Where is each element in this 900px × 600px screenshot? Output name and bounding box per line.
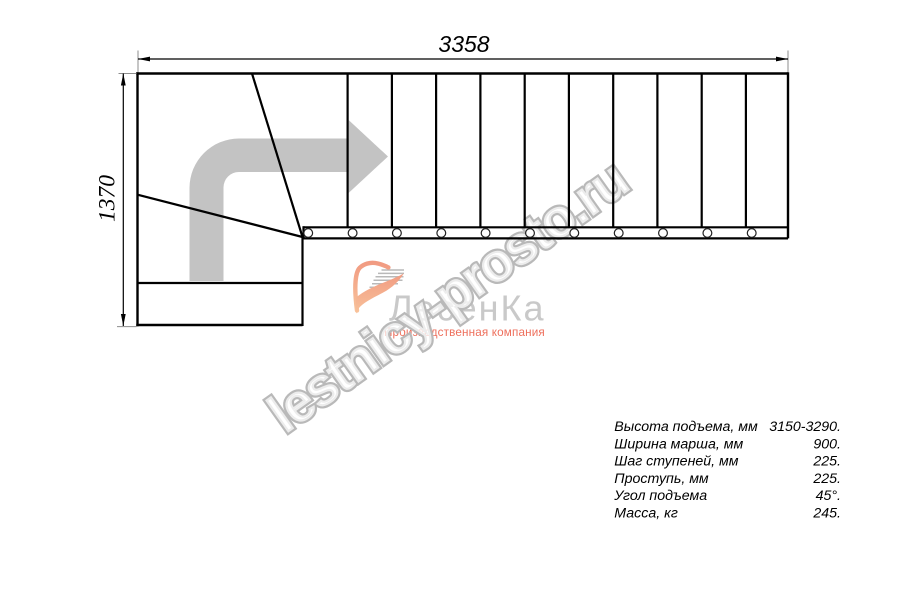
svg-text:3150-3290.: 3150-3290. — [769, 419, 841, 435]
svg-text:Проступь, мм: Проступь, мм — [614, 471, 709, 487]
svg-text:lestnicy-prosto.ru: lestnicy-prosto.ru — [256, 148, 638, 445]
svg-text:Шаг ступеней, мм: Шаг ступеней, мм — [614, 454, 738, 470]
svg-text:900.: 900. — [813, 436, 841, 452]
svg-text:45°.: 45°. — [816, 488, 841, 504]
svg-text:Масса, кг: Масса, кг — [614, 506, 678, 522]
svg-text:1370: 1370 — [95, 175, 121, 222]
svg-text:225.: 225. — [812, 454, 841, 470]
svg-text:Ширина марша, мм: Ширина марша, мм — [614, 436, 743, 452]
svg-text:225.: 225. — [812, 471, 841, 487]
svg-text:245.: 245. — [812, 506, 841, 522]
svg-text:3358: 3358 — [438, 31, 489, 57]
svg-text:Высота подъема, мм: Высота подъема, мм — [614, 419, 758, 435]
svg-text:Угол подъема: Угол подъема — [613, 488, 707, 504]
